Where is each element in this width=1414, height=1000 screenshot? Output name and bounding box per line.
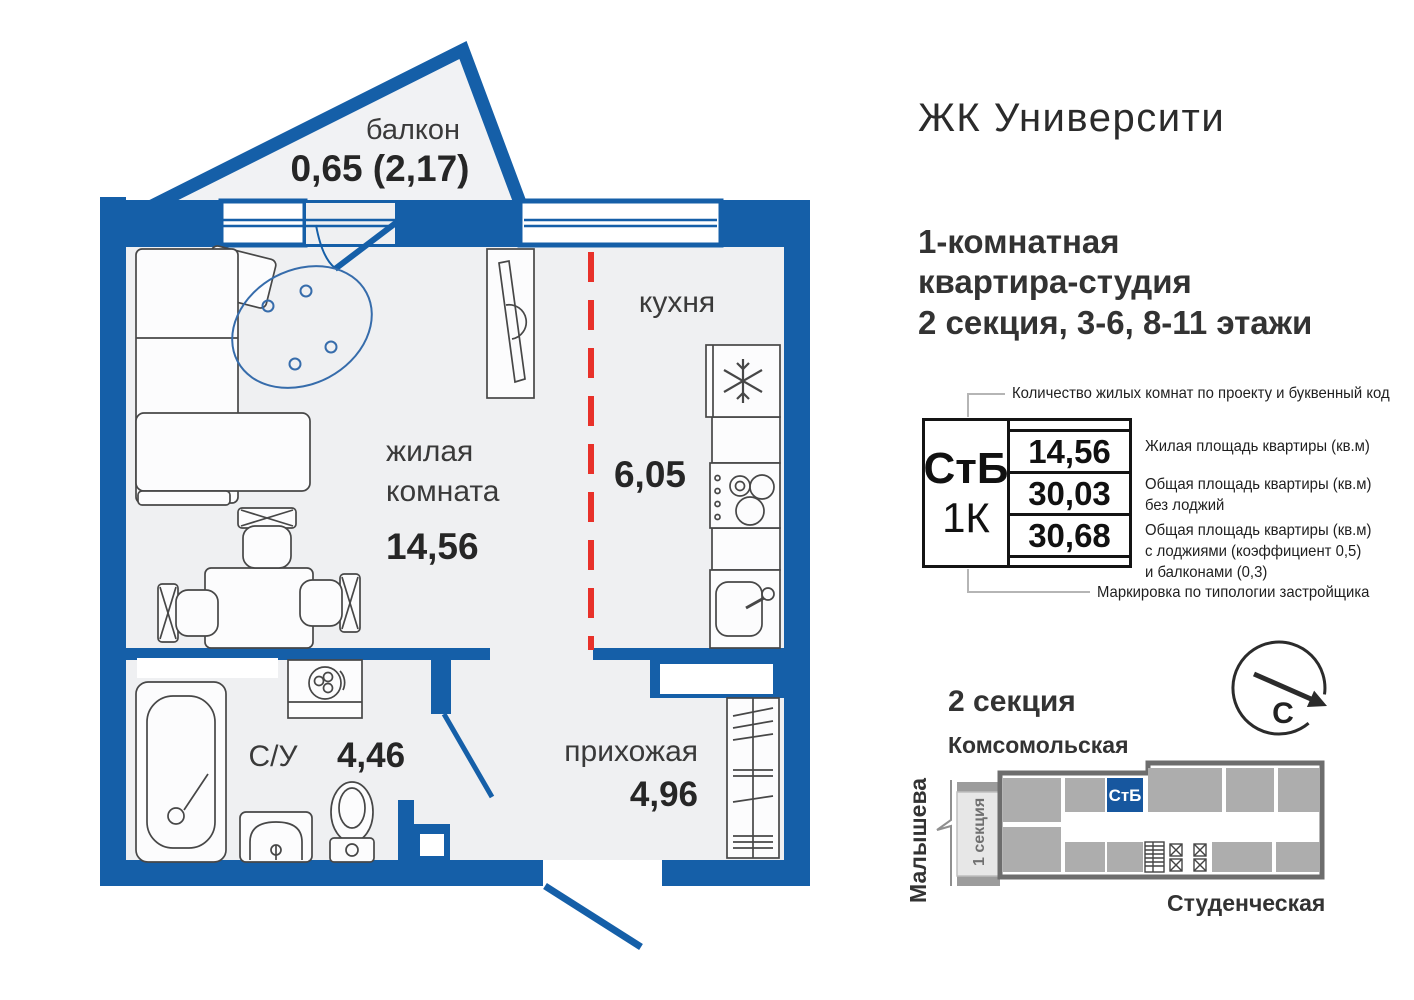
spec-note-total: Общая площадь квартиры (кв.м) без лоджий <box>1145 475 1371 517</box>
room-label-hallway: прихожая <box>564 735 698 768</box>
washing-machine <box>288 660 362 718</box>
subtitle-line: 1-комнатная <box>918 222 1312 262</box>
spec-value-total-with-balcony: 30,68 <box>1007 513 1132 558</box>
area-value-balcony: 0,65 (2,17) <box>291 148 470 189</box>
tv-unit <box>487 249 534 398</box>
street-label-bottom: Студенческая <box>1167 890 1325 916</box>
room-label-living-1: жилая <box>386 435 473 468</box>
room-label-balcony: балкон <box>366 114 460 146</box>
kitchen-window <box>520 201 721 245</box>
note-line: без лоджий <box>1145 496 1371 517</box>
spec-value-total: 30,03 <box>1007 471 1132 516</box>
section-map-heading: 2 секция <box>948 685 1076 718</box>
area-value-kitchen: 6,05 <box>614 454 686 495</box>
living-window <box>221 201 305 245</box>
chair <box>300 574 360 632</box>
break-line <box>937 780 951 886</box>
area-value-hallway: 4,96 <box>630 775 698 814</box>
spec-values-column: 14,56 30,03 30,68 <box>1010 421 1129 565</box>
chair <box>158 584 218 642</box>
street-label-left: Малышева <box>905 778 931 903</box>
floor-plan: балкон 0,65 (2,17) кухня 6,05 жилая комн… <box>100 50 810 947</box>
apartment-subtitle: 1-комнатная квартира-студия 2 секция, 3-… <box>918 222 1312 343</box>
fridge-icon <box>706 345 780 417</box>
cooktop <box>710 463 780 528</box>
note-line: Общая площадь квартиры (кв.м) <box>1145 521 1371 542</box>
bath-niche <box>137 658 278 678</box>
section-map: 2 секция Комсомольская Студенческая Малы… <box>905 642 1327 916</box>
balcony-walls <box>112 50 528 226</box>
area-value-bathroom: 4,46 <box>337 736 405 775</box>
stairs-icon <box>1145 842 1164 872</box>
spec-top-note: Количество жилых комнат по проекту и бук… <box>1012 384 1390 405</box>
room-label-kitchen: кухня <box>639 286 715 319</box>
page: балкон 0,65 (2,17) кухня 6,05 жилая комн… <box>0 0 1414 1000</box>
subtitle-line: 2 секция, 3-6, 8-11 этажи <box>918 303 1312 343</box>
compass-north-label: С <box>1272 697 1294 730</box>
kitchen-sink <box>710 570 780 648</box>
toilet <box>330 782 374 862</box>
compass-icon: С <box>1233 642 1327 734</box>
note-line: с лоджиями (коэффициент 0,5) <box>1145 542 1371 563</box>
street-label-top: Комсомольская <box>948 732 1129 758</box>
room-label-bathroom: С/У <box>248 740 298 773</box>
type-code: СтБ <box>924 446 1009 492</box>
note-line: и балконами (0,3) <box>1145 563 1371 584</box>
area-value-living: 14,56 <box>386 526 479 567</box>
hall-niche <box>660 664 773 694</box>
spec-type-cell: СтБ 1К <box>925 421 1010 565</box>
vent-shaft <box>420 834 444 856</box>
bathroom-sink <box>240 812 312 862</box>
page-title: ЖК Университи <box>918 96 1225 141</box>
note-line: Общая площадь квартиры (кв.м) <box>1145 475 1371 496</box>
entry-door <box>545 886 641 947</box>
spec-note-living: Жилая площадь квартиры (кв.м) <box>1145 437 1370 458</box>
adjacent-section-label: 1 секция <box>971 798 988 866</box>
adjacent-section-block: 1 секция <box>937 780 1000 886</box>
kitchen-counter <box>712 528 780 570</box>
spec-value-living: 14,56 <box>1007 429 1132 474</box>
unit-marker-label: СтБ <box>1109 786 1142 805</box>
subtitle-line: квартира-студия <box>918 262 1312 302</box>
chair <box>238 508 296 568</box>
kitchen-counter <box>712 417 780 463</box>
unit-marker: СтБ <box>1107 778 1143 812</box>
room-code: 1К <box>942 496 990 540</box>
spec-table: СтБ 1К 14,56 30,03 30,68 <box>922 418 1132 568</box>
note-line: Жилая площадь квартиры (кв.м) <box>1145 437 1370 458</box>
wardrobe <box>727 698 779 858</box>
dining-table <box>205 568 313 648</box>
spec-bottom-note: Маркировка по типологии застройщика <box>1097 583 1369 604</box>
room-label-living-2: комната <box>386 475 500 508</box>
spec-note-total-balcony: Общая площадь квартиры (кв.м) с лоджиями… <box>1145 521 1371 583</box>
bathtub <box>136 682 226 862</box>
